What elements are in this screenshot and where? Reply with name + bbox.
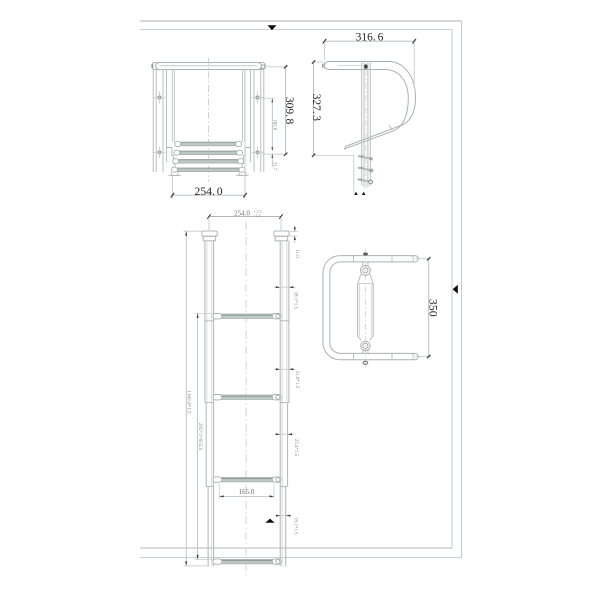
svg-text:285*3=855.0: 285*3=855.0 [197,423,203,451]
svg-text:38.1*1.5: 38.1*1.5 [293,291,298,309]
svg-text:19.1*1.5: 19.1*1.5 [292,517,297,535]
svg-text:185.0: 185.0 [271,119,276,130]
svg-text:309.8: 309.8 [283,97,295,125]
svg-text:165.0: 165.0 [239,488,255,496]
svg-text:31.8*1.5: 31.8*1.5 [294,371,299,389]
svg-text:316.6: 316.6 [356,31,384,43]
svg-text:254.0: 254.0 [234,210,250,218]
svg-text:-1.5: -1.5 [254,213,262,218]
svg-text:327.3: 327.3 [310,94,322,122]
svg-text:31.7: 31.7 [271,162,276,171]
svg-text:11.0: 11.0 [294,249,299,258]
svg-text:25.4*1.5: 25.4*1.5 [293,439,298,457]
svg-text:1160.0*1.5: 1160.0*1.5 [186,390,192,414]
svg-text:350: 350 [427,299,441,317]
svg-text:254.0: 254.0 [194,184,222,198]
